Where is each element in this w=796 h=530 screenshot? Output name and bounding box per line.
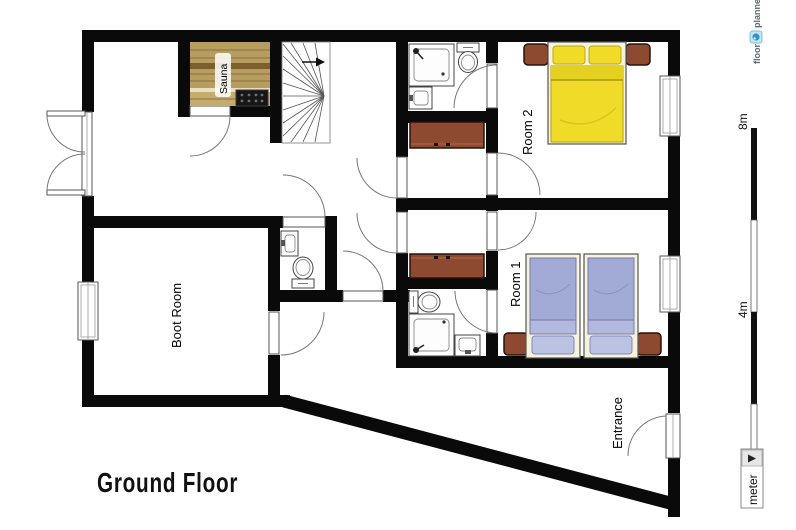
shower <box>409 314 454 356</box>
sauna-heater <box>236 90 268 106</box>
window-room2 <box>660 76 680 136</box>
door-lobby2-corridor <box>357 212 407 253</box>
door-bathroom2 <box>455 290 497 333</box>
floorplanner-logo[interactable]: floor planner <box>750 0 762 64</box>
sink <box>455 335 480 356</box>
wall-bottom-left <box>82 395 290 407</box>
wall-stairs-left <box>270 42 282 143</box>
entrance-label: Entrance <box>610 397 625 449</box>
door-entrance <box>628 414 680 458</box>
wardrobe <box>410 122 484 148</box>
scale-segment <box>751 128 757 220</box>
sauna-room: Sauna <box>190 42 270 106</box>
door-bathroom1 <box>454 64 497 108</box>
floor-plan-svg: Sauna <box>0 0 796 530</box>
pillow <box>553 46 585 64</box>
wc-room <box>281 231 314 288</box>
pillow <box>532 336 574 354</box>
logo-word-floor: floor <box>752 44 762 64</box>
unit-dropdown[interactable]: meter <box>741 449 763 508</box>
wall-corridor <box>268 290 410 302</box>
toilet <box>457 43 479 73</box>
scale-label-4m: 4m <box>736 301 750 318</box>
nightstand <box>504 333 528 355</box>
scale-bar: 8m 4m <box>736 113 757 497</box>
wall-wc-right <box>325 216 337 302</box>
sink-tap <box>465 350 471 354</box>
boot-room-label: Boot Room <box>169 283 184 348</box>
shower-drain <box>442 320 445 323</box>
sink <box>409 87 432 109</box>
wall-bath1-bottom <box>396 111 498 123</box>
door-corridor <box>343 251 383 301</box>
sink <box>281 231 298 256</box>
toilet <box>409 291 440 313</box>
floorplanner-canvas: Sauna <box>0 0 796 530</box>
room1-furniture <box>504 254 661 358</box>
staircase <box>282 42 330 143</box>
sauna-label: Sauna <box>218 63 230 94</box>
floor-title: Ground Floor <box>97 468 238 499</box>
unit-dropdown-value: meter <box>746 474 760 505</box>
scale-segment <box>751 312 757 404</box>
nightstand <box>637 333 661 355</box>
window-room1 <box>660 256 680 312</box>
room1-label: Room 1 <box>508 261 523 307</box>
nightstand <box>626 44 650 65</box>
sink-tap <box>409 95 413 101</box>
door-boot-room <box>269 312 324 355</box>
wardrobe <box>410 254 484 278</box>
nightstand <box>524 44 548 65</box>
room2-label: Room 2 <box>520 109 535 155</box>
sink-tap <box>281 240 285 246</box>
double-bed <box>548 42 626 144</box>
double-door-left <box>47 111 92 196</box>
single-bed <box>584 254 638 358</box>
wall-sauna-left <box>178 42 190 117</box>
pillow <box>589 46 621 64</box>
scale-segment <box>751 220 757 312</box>
wall-sauna-bottom <box>230 106 270 117</box>
door-wc <box>283 175 325 227</box>
logo-word-planner: planner <box>752 0 762 28</box>
wall-room-divider <box>396 198 680 210</box>
room2-furniture <box>524 42 650 144</box>
wall-top <box>82 30 680 42</box>
single-bed <box>526 254 580 358</box>
scale-label-8m: 8m <box>736 113 750 130</box>
pillow <box>590 336 632 354</box>
wall-bath2-top <box>396 277 498 289</box>
toilet <box>292 257 314 288</box>
door-sauna <box>190 106 230 156</box>
duvet <box>530 258 576 320</box>
bathroom2 <box>409 291 480 356</box>
door-room2 <box>487 153 540 195</box>
shower-drain <box>441 72 444 75</box>
door-room1 <box>487 212 536 250</box>
window-boot-room <box>78 282 98 340</box>
door-lobby1-hall <box>357 157 407 198</box>
duvet <box>588 258 634 320</box>
shower <box>409 44 454 86</box>
